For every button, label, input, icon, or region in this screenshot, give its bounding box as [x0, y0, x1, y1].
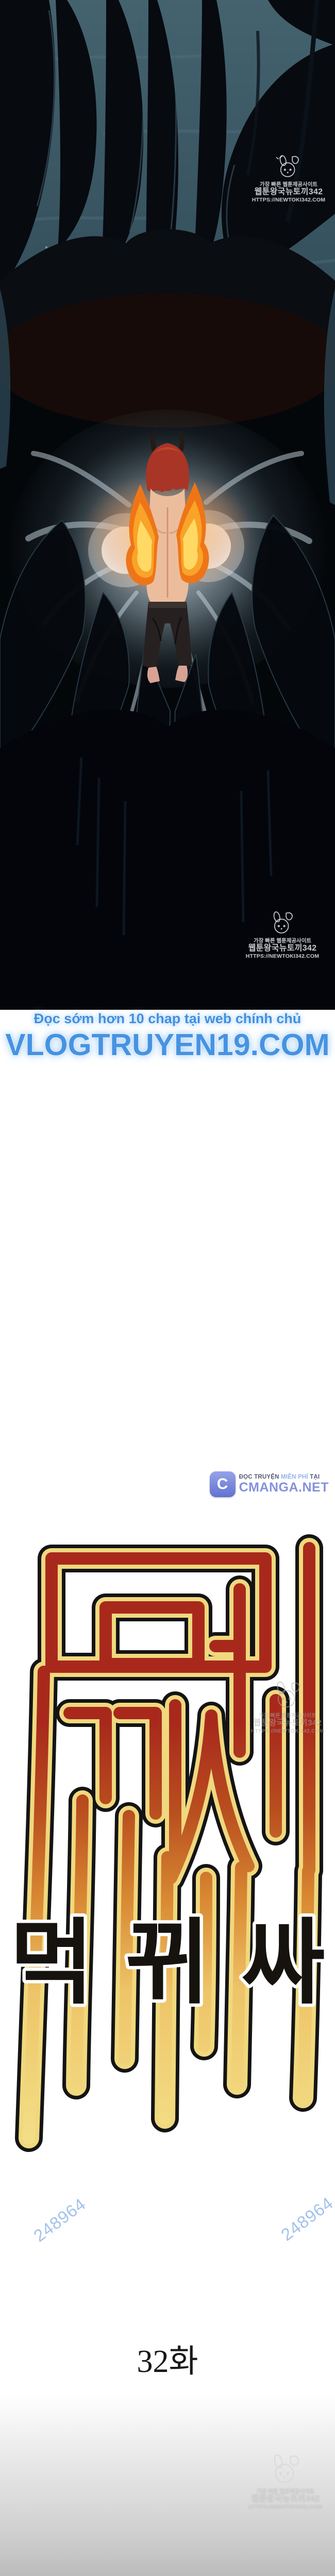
promo-text: Đọc sớm hơn 10 chap tại web chính chủ: [0, 1011, 335, 1027]
watermark-line2: 웹툰왕국뉴토끼342: [243, 2495, 328, 2504]
top-artwork-panel: [0, 0, 335, 1010]
bottom-blackout: [0, 709, 335, 1010]
serial-number-watermark: 248964: [277, 2193, 335, 2245]
title-calligraphy-text: 먹 뀌 싸: [10, 1909, 325, 2017]
rabbit-mascot-icon: [271, 1681, 304, 1711]
watermark-url: HTTPS://NEWTOKI342.COM: [245, 1728, 330, 1734]
watermark-line2: 웹툰왕국뉴토끼342: [245, 1719, 330, 1728]
newtoki-watermark: 가장 빠른 웹툰제공사이트 웹툰왕국뉴토끼342 HTTPS://NEWTOKI…: [245, 1681, 330, 1735]
rabbit-mascot-icon: [267, 2453, 304, 2487]
watermark-line1: 가장 빠른 웹툰제공사이트: [245, 1713, 330, 1719]
watermark-line1: 가장 빠른 웹툰제공사이트: [240, 938, 325, 944]
cmanga-logo-icon: C: [210, 1471, 236, 1497]
promo-site-url: VLOGTRUYEN19.COM: [0, 1027, 335, 1062]
cmanga-tagline-at: TẠI: [310, 1474, 320, 1480]
watermark-line1: 가장 빠른 웹툰제공사이트: [243, 2488, 328, 2495]
watermark-url: HTTPS://NEWTOKI342.COM: [243, 2504, 328, 2510]
title-logo-artwork: 먹 뀌 싸: [0, 1530, 335, 2154]
watermark-url: HTTPS://NEWTOKI342.COM: [240, 953, 325, 959]
serial-number-watermark: 248964: [30, 2194, 90, 2246]
newtoki-watermark: 가장 빠른 웹툰제공사이트 웹툰왕국뉴토끼342 HTTPS://NEWTOKI…: [240, 911, 325, 960]
cmanga-tagline: ĐỌC TRUYỆN MIỄN PHÍ TẠI: [239, 1474, 329, 1480]
cmanga-tagline-free: MIỄN PHÍ: [281, 1474, 308, 1480]
newtoki-watermark: 가장 빠른 웹툰제공사이트 웹툰왕국뉴토끼342 HTTPS://NEWTOKI…: [243, 2453, 328, 2511]
watermark-line2: 웹툰왕국뉴토끼342: [240, 944, 325, 953]
comic-page: 가장 빠른 웹툰제공사이트 웹툰왕국뉴토끼342 HTTPS://NEWTOKI…: [0, 0, 335, 2576]
episode-number: 32화: [0, 2335, 335, 2381]
newtoki-watermark: 가장 빠른 웹툰제공사이트 웹툰왕국뉴토끼342 HTTPS://NEWTOKI…: [246, 155, 331, 204]
cmanga-icon-letter: C: [217, 1476, 228, 1493]
watermark-url: HTTPS://NEWTOKI342.COM: [246, 197, 331, 203]
maroon-tint: [0, 294, 335, 428]
watermark-line1: 가장 빠른 웹툰제공사이트: [246, 181, 331, 188]
cmanga-site-url: CMANGA.NET: [239, 1480, 329, 1495]
cmanga-tagline-read: ĐỌC TRUYỆN: [239, 1474, 279, 1480]
watermark-line2: 웹툰왕국뉴토끼342: [246, 188, 331, 197]
rabbit-mascot-icon: [275, 155, 303, 180]
cmanga-watermark: C ĐỌC TRUYỆN MIỄN PHÍ TẠI CMANGA.NET: [210, 1471, 329, 1497]
rabbit-mascot-icon: [269, 911, 296, 937]
